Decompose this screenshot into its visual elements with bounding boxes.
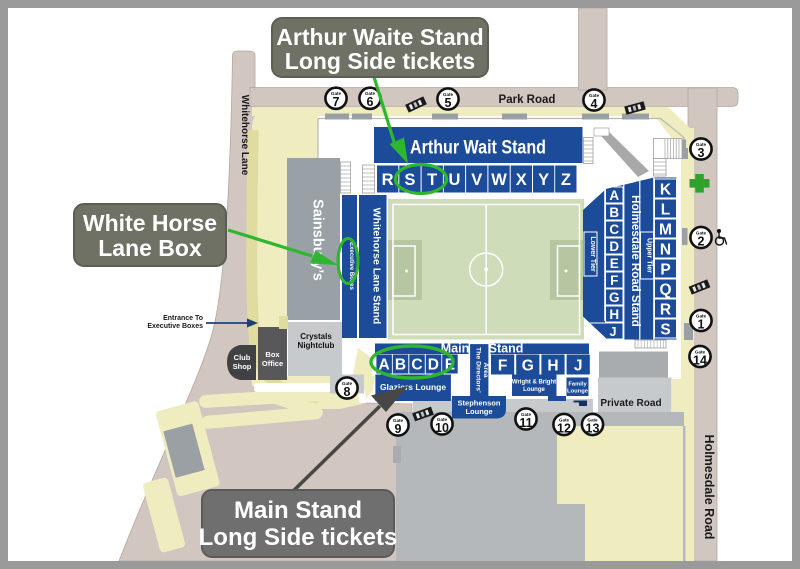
- svg-text:Holmesdale Road Stand: Holmesdale Road Stand: [629, 195, 641, 327]
- svg-text:E: E: [610, 256, 619, 271]
- svg-text:Arthur Waite Stand: Arthur Waite Stand: [276, 24, 483, 50]
- svg-text:D: D: [428, 357, 439, 374]
- svg-text:G: G: [609, 290, 620, 305]
- svg-text:Long Side tickets: Long Side tickets: [199, 524, 398, 551]
- svg-text:Long Side tickets: Long Side tickets: [285, 48, 475, 74]
- svg-text:14: 14: [693, 353, 707, 367]
- svg-text:Holmesdale Road: Holmesdale Road: [702, 435, 716, 540]
- svg-text:G: G: [522, 358, 534, 375]
- svg-text:L: L: [661, 201, 670, 218]
- svg-text:Sainsbury’s: Sainsbury’s: [310, 199, 326, 281]
- svg-text:Whitehorse Lane: Whitehorse Lane: [239, 95, 250, 176]
- svg-text:Area: Area: [482, 362, 489, 377]
- svg-text:A: A: [609, 188, 619, 203]
- svg-text:Shop: Shop: [233, 362, 252, 371]
- svg-text:F: F: [498, 358, 507, 375]
- svg-text:Stand: Stand: [489, 342, 524, 356]
- svg-text:C: C: [609, 222, 619, 237]
- svg-text:7: 7: [333, 95, 340, 109]
- svg-text:H: H: [609, 307, 619, 322]
- svg-text:Crystals: Crystals: [300, 332, 332, 341]
- svg-text:Executive Boxes: Executive Boxes: [147, 323, 203, 330]
- svg-text:X: X: [516, 171, 527, 189]
- svg-text:4: 4: [591, 97, 598, 111]
- svg-text:Lounge: Lounge: [465, 407, 492, 416]
- svg-text:Office: Office: [262, 359, 283, 368]
- svg-text:C: C: [411, 357, 422, 374]
- svg-text:8: 8: [344, 385, 351, 399]
- svg-text:Whitehorse Lane Stand: Whitehorse Lane Stand: [371, 208, 383, 325]
- svg-text:N: N: [660, 241, 671, 258]
- svg-text:Upper Tier: Upper Tier: [645, 238, 652, 273]
- svg-text:H: H: [547, 358, 558, 375]
- svg-text:B: B: [609, 205, 619, 220]
- svg-text:13: 13: [586, 421, 600, 435]
- svg-text:S: S: [404, 171, 415, 189]
- svg-text:Club: Club: [234, 353, 251, 362]
- svg-text:1: 1: [698, 317, 705, 331]
- svg-text:Lounge: Lounge: [523, 387, 545, 393]
- svg-text:Arthur Wait Stand: Arthur Wait Stand: [410, 138, 546, 159]
- svg-text:5: 5: [445, 96, 452, 110]
- svg-text:6: 6: [367, 95, 374, 109]
- svg-text:M: M: [659, 221, 672, 238]
- svg-text:P: P: [660, 261, 670, 278]
- svg-text:Entrance To: Entrance To: [163, 315, 203, 322]
- svg-text:R: R: [382, 171, 394, 189]
- svg-text:R: R: [660, 301, 671, 318]
- svg-text:V: V: [471, 171, 482, 189]
- svg-text:Lane Box: Lane Box: [98, 235, 202, 261]
- svg-text:Lower Tier: Lower Tier: [589, 236, 596, 272]
- svg-text:F: F: [610, 273, 618, 288]
- svg-text:K: K: [660, 181, 672, 198]
- svg-text:Y: Y: [538, 171, 549, 189]
- svg-text:11: 11: [519, 416, 532, 430]
- svg-text:D: D: [609, 239, 619, 254]
- svg-text:Park Road: Park Road: [499, 94, 556, 106]
- svg-text:U: U: [449, 171, 461, 189]
- svg-text:3: 3: [698, 146, 705, 160]
- svg-text:T: T: [427, 171, 437, 189]
- svg-text:Private Road: Private Road: [600, 398, 661, 409]
- svg-text:Box: Box: [265, 350, 280, 359]
- svg-text:Q: Q: [659, 281, 671, 298]
- svg-text:9: 9: [395, 422, 402, 436]
- svg-text:Wright & Bright: Wright & Bright: [512, 380, 556, 386]
- svg-text:B: B: [395, 357, 406, 374]
- svg-text:Family: Family: [568, 382, 587, 388]
- svg-text:W: W: [491, 171, 507, 189]
- svg-text:J: J: [610, 325, 617, 339]
- svg-text:12: 12: [557, 421, 571, 435]
- svg-text:S: S: [660, 321, 670, 338]
- svg-text:White Horse: White Horse: [83, 210, 217, 236]
- svg-text:J: J: [574, 358, 583, 375]
- svg-text:Main Stand: Main Stand: [234, 497, 362, 524]
- svg-text:Z: Z: [561, 171, 571, 189]
- svg-text:2: 2: [698, 234, 705, 248]
- svg-text:Glaziers Lounge: Glaziers Lounge: [380, 382, 446, 392]
- svg-text:The Directors’: The Directors’: [474, 347, 481, 393]
- svg-text:Nightclub: Nightclub: [298, 341, 335, 350]
- svg-text:Lounge: Lounge: [567, 389, 589, 395]
- svg-text:10: 10: [435, 421, 449, 435]
